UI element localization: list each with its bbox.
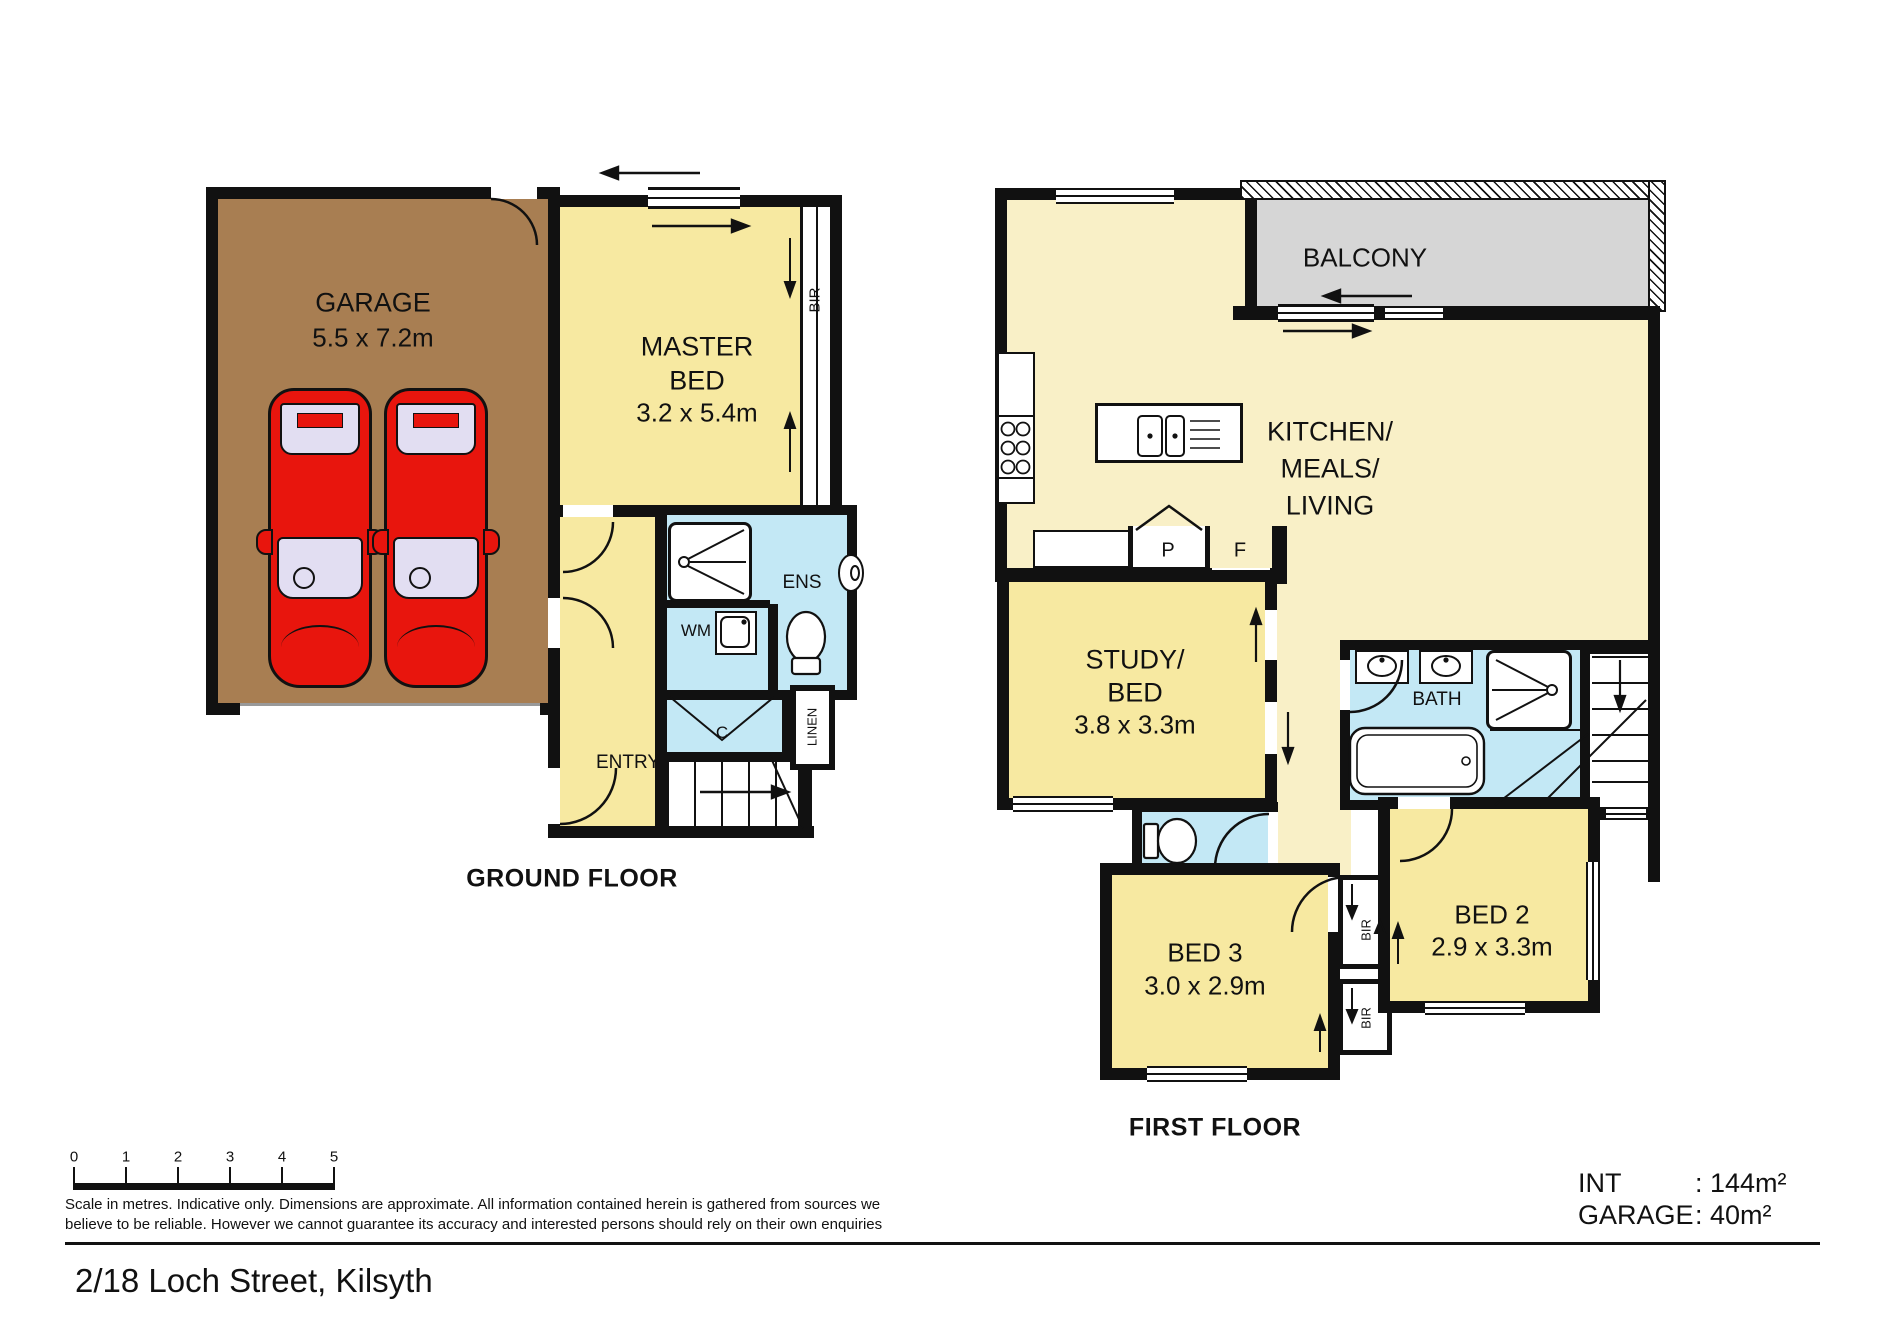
wall bbox=[1648, 582, 1660, 882]
door-gap bbox=[548, 598, 560, 648]
car-rear-window bbox=[280, 403, 360, 455]
shower-icon bbox=[668, 522, 752, 602]
scale-tick bbox=[177, 1167, 179, 1183]
basin-icon bbox=[1419, 650, 1473, 684]
car-hood-line bbox=[397, 625, 475, 669]
floor-plan-canvas: GARAGE 5.5 x 7.2m MASTER BED 3.2 x 5.4m … bbox=[0, 0, 1886, 1333]
shower-icon bbox=[1486, 650, 1572, 730]
window-icon bbox=[1606, 807, 1646, 820]
car-steering-wheel bbox=[293, 567, 315, 589]
master-bed-label: BED bbox=[669, 366, 725, 397]
door-gap bbox=[1265, 610, 1277, 660]
car-icon bbox=[268, 388, 372, 688]
garage-area-label: GARAGE bbox=[1578, 1200, 1694, 1231]
scale-tick bbox=[73, 1167, 75, 1183]
pantry-label: P bbox=[1161, 540, 1174, 563]
first-floor-title: FIRST FLOOR bbox=[1129, 1114, 1301, 1143]
master-bed-dims: 3.2 x 5.4m bbox=[636, 398, 757, 429]
car-rear-window bbox=[396, 403, 476, 455]
disclaimer-line2: believe to be reliable. However we canno… bbox=[65, 1216, 882, 1233]
scale-tick-label: 2 bbox=[174, 1149, 182, 1166]
door-gap bbox=[548, 768, 560, 824]
study-dims: 3.8 x 3.3m bbox=[1074, 710, 1195, 741]
scale-tick bbox=[229, 1167, 231, 1183]
car-hood-line bbox=[281, 625, 359, 669]
bir-label: BIR bbox=[1359, 1007, 1374, 1029]
garage-dims: 5.5 x 7.2m bbox=[312, 323, 433, 354]
scale-tick-label: 1 bbox=[122, 1149, 130, 1166]
wm-label: WM bbox=[681, 621, 711, 641]
window-icon bbox=[1147, 1066, 1247, 1082]
kitchen-label: KITCHEN/ bbox=[1267, 417, 1393, 448]
balcony-railing bbox=[1240, 180, 1666, 200]
window-icon bbox=[1425, 1001, 1525, 1015]
disclaimer-line1: Scale in metres. Indicative only. Dimens… bbox=[65, 1196, 880, 1213]
balcony-railing bbox=[1648, 180, 1666, 312]
sliding-door bbox=[1278, 304, 1374, 322]
bir-label: BIR bbox=[1359, 919, 1374, 941]
built-in-robe bbox=[800, 207, 830, 505]
study-label: STUDY/ bbox=[1085, 645, 1184, 676]
basin-icon bbox=[1355, 650, 1409, 684]
divider-line bbox=[65, 1242, 1820, 1245]
door-gap bbox=[1340, 660, 1350, 710]
ground-floor-title: GROUND FLOOR bbox=[466, 865, 678, 894]
property-address: 2/18 Loch Street, Kilsyth bbox=[75, 1262, 433, 1300]
bed3-label: BED 3 bbox=[1167, 938, 1242, 969]
balcony-label: BALCONY bbox=[1303, 243, 1427, 274]
scale-tick-label: 3 bbox=[226, 1149, 234, 1166]
fridge-label: F bbox=[1234, 540, 1246, 563]
garage-label: GARAGE bbox=[315, 288, 431, 319]
window-icon bbox=[1586, 862, 1600, 980]
car-icon bbox=[384, 388, 488, 688]
entry-label: ENTRY bbox=[596, 752, 660, 774]
living-label: LIVING bbox=[1286, 491, 1375, 522]
car-plate bbox=[297, 413, 343, 428]
door-gap bbox=[563, 505, 613, 517]
sliding-door bbox=[648, 187, 740, 209]
bed2-dims: 2.9 x 3.3m bbox=[1431, 932, 1552, 963]
stairs-icon bbox=[1592, 656, 1648, 782]
stairs-icon bbox=[667, 762, 800, 826]
wall bbox=[768, 604, 778, 692]
door-gap bbox=[1265, 702, 1277, 754]
room-entry bbox=[548, 505, 667, 838]
window-icon bbox=[1013, 796, 1113, 812]
scale-tick bbox=[333, 1167, 335, 1183]
scale-baseline bbox=[73, 1183, 335, 1190]
garage-door bbox=[240, 703, 540, 723]
bath-label: BATH bbox=[1412, 689, 1461, 711]
car-windshield bbox=[277, 537, 363, 599]
wall bbox=[798, 764, 812, 838]
wall bbox=[655, 826, 814, 838]
car-steering-wheel bbox=[409, 567, 431, 589]
int-area-label: INT bbox=[1578, 1168, 1622, 1199]
scale-tick-label: 4 bbox=[278, 1149, 286, 1166]
car-windshield bbox=[393, 537, 479, 599]
kitchen-counter bbox=[1033, 530, 1133, 568]
door-gap bbox=[1398, 797, 1450, 809]
door-gap bbox=[1268, 812, 1278, 868]
kitchen-island bbox=[1095, 403, 1243, 463]
bed2-label: BED 2 bbox=[1454, 900, 1529, 931]
bir-label: BIR bbox=[807, 287, 824, 312]
linen-label: LINEN bbox=[805, 708, 820, 746]
scale-tick-label: 5 bbox=[330, 1149, 338, 1166]
master-bed-label: MASTER bbox=[641, 332, 754, 363]
car-plate bbox=[413, 413, 459, 428]
scale-tick-label: 0 bbox=[70, 1149, 78, 1166]
room-garage bbox=[206, 187, 560, 715]
cupboard-label: C bbox=[716, 723, 728, 743]
study-label: BED bbox=[1107, 678, 1163, 709]
bed3-dims: 3.0 x 2.9m bbox=[1144, 971, 1265, 1002]
window-icon bbox=[1056, 188, 1174, 204]
int-area-value: : 144m² bbox=[1695, 1168, 1787, 1199]
ensuite-label: ENS bbox=[782, 572, 821, 594]
scale-tick bbox=[125, 1167, 127, 1183]
door-gap bbox=[491, 187, 537, 199]
garage-area-value: : 40m² bbox=[1695, 1200, 1772, 1231]
window-icon bbox=[1385, 306, 1443, 320]
meals-label: MEALS/ bbox=[1280, 454, 1379, 485]
scale-tick bbox=[281, 1167, 283, 1183]
stove-icon bbox=[997, 415, 1035, 479]
